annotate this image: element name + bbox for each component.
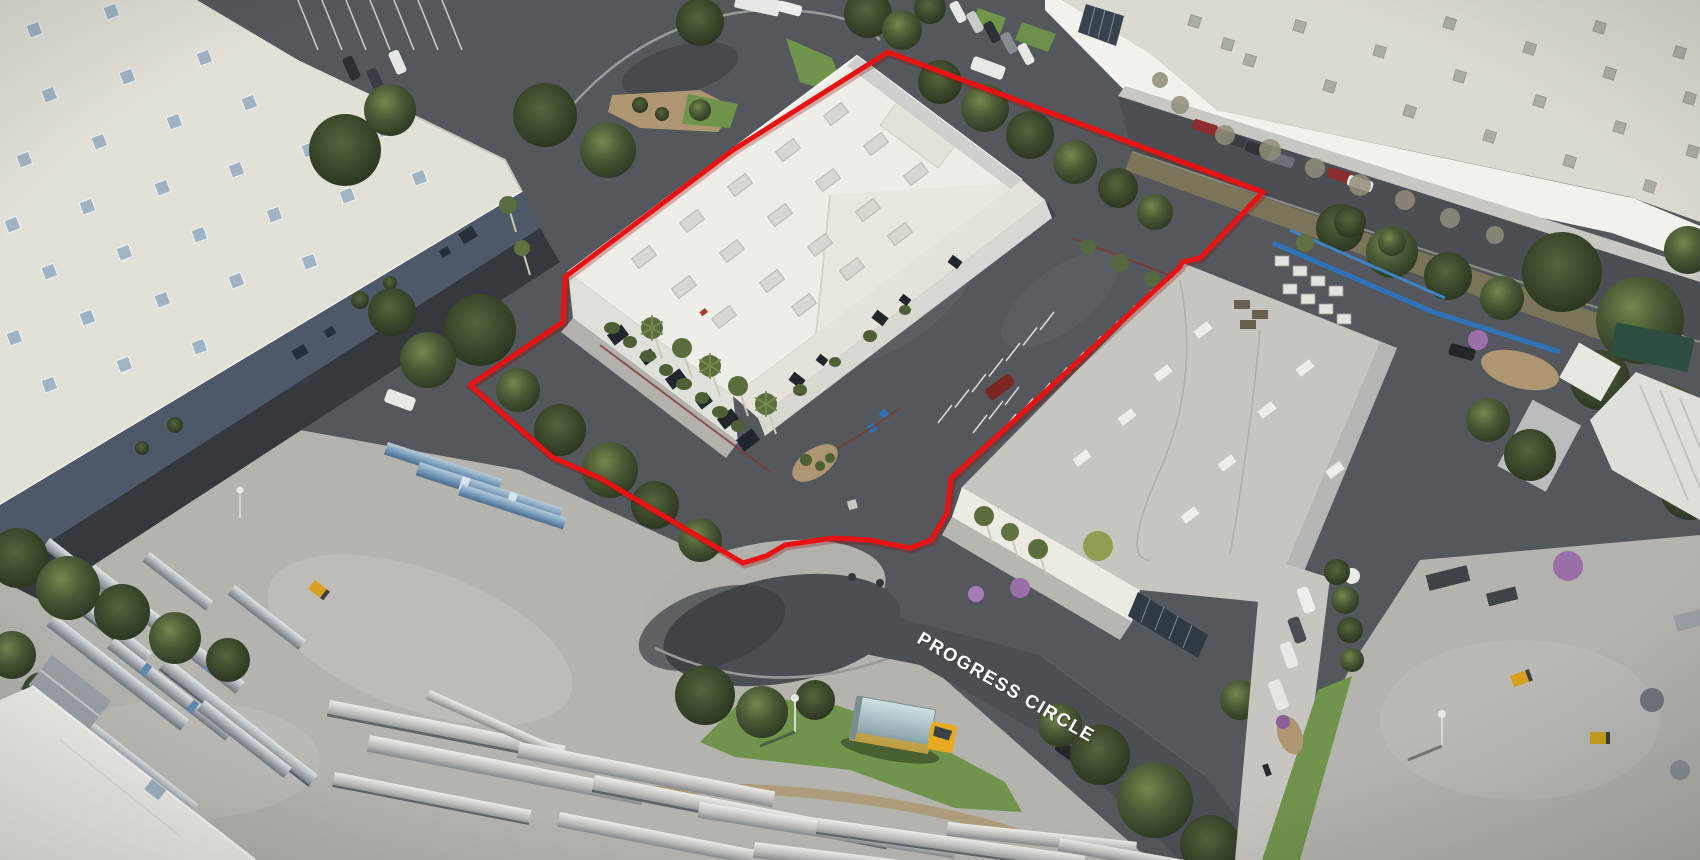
aerial-photo: PROGRESS CIRCLE PROGRESS CIRCLE	[0, 0, 1700, 860]
vignette	[0, 0, 1700, 860]
